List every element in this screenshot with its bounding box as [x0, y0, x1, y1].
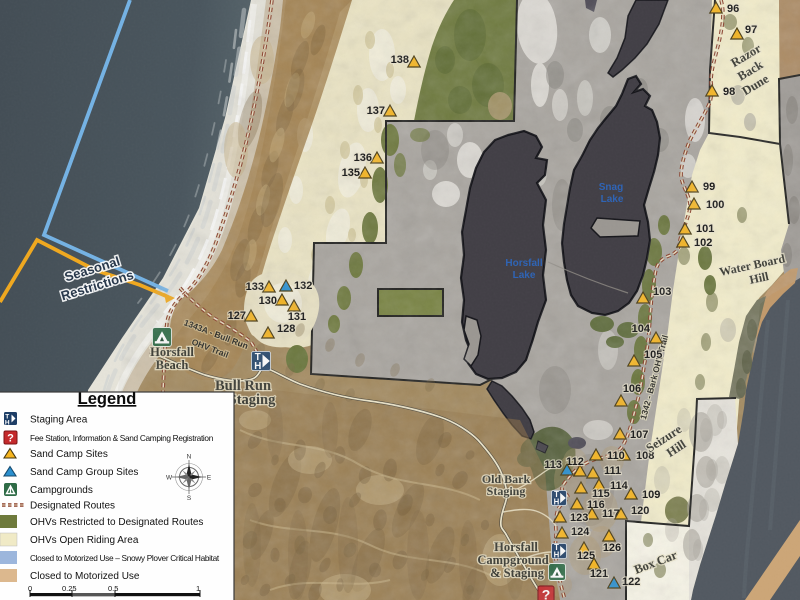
svg-text:0.5: 0.5	[108, 584, 118, 593]
svg-text:S: S	[187, 495, 192, 502]
svg-text:OHVs Open Riding Area: OHVs Open Riding Area	[30, 535, 139, 546]
svg-text:OHVs Restricted to Designated: OHVs Restricted to Designated Routes	[30, 517, 203, 528]
svg-text:Closed to Motorized Use: Closed to Motorized Use	[30, 571, 140, 582]
svg-text:?: ?	[7, 433, 14, 445]
svg-text:E: E	[207, 475, 212, 482]
svg-text:Sand Camp Group Sites: Sand Camp Group Sites	[30, 467, 138, 478]
svg-text:0.25: 0.25	[62, 584, 77, 593]
svg-text:N: N	[187, 454, 192, 461]
svg-text:W: W	[166, 475, 173, 482]
svg-text:H: H	[5, 420, 10, 427]
svg-text:Designated Routes: Designated Routes	[30, 501, 115, 512]
svg-text:Closed to Motorized Use – Snow: Closed to Motorized Use – Snowy Plover C…	[30, 553, 220, 563]
svg-text:Staging Area: Staging Area	[30, 415, 88, 426]
svg-text:Legend: Legend	[78, 390, 137, 408]
svg-text:Campgrounds: Campgrounds	[30, 485, 93, 496]
svg-text:Fee Station, Information & San: Fee Station, Information & Sand Camping …	[30, 433, 214, 443]
svg-text:Sand Camp Sites: Sand Camp Sites	[30, 449, 108, 460]
